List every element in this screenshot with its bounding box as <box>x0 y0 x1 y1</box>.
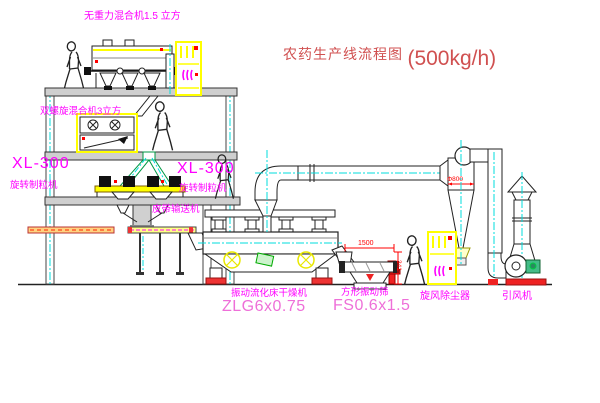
bucket-elevator-2 <box>428 232 456 284</box>
title-capacity: (500kg/h) <box>407 47 496 70</box>
diagram-title: 农药生产线流程图 (500kg/h) <box>283 44 496 71</box>
exhaust-downpipe <box>470 149 506 278</box>
cyclone-label: 旋风除尘器 <box>420 292 470 302</box>
person-4 <box>405 236 425 284</box>
belt-conveyor-label: 皮带输送机 <box>152 205 200 215</box>
cyclone-diameter-dim: Φ800 <box>447 177 463 184</box>
title-chinese: 农药生产线流程图 <box>283 46 403 62</box>
person-1 <box>65 42 84 88</box>
granulator-left-name: 旋转制粒机 <box>10 181 58 191</box>
mixer1-label: 无重力混合机1.5 立方 <box>84 12 181 22</box>
granulator-left-model: XL-300 <box>12 156 70 172</box>
granulator-right-name: 旋转制粒机 <box>179 184 227 194</box>
person-2 <box>153 102 173 150</box>
fan-label: 引风机 <box>502 292 532 302</box>
granulator-right-model: XL-300 <box>177 161 235 177</box>
flow-diagram-canvas: 农药生产线流程图 (500kg/h) 无重力混合机1.5 立方 双螺旋混合机3立… <box>0 0 600 403</box>
rotary-granulators <box>95 176 185 199</box>
bucket-elevator-1 <box>176 42 201 95</box>
sieve-model-label: FS0.6x1.5 <box>333 298 410 314</box>
sieve-length-dim: 1500 <box>358 240 374 247</box>
sieve-height-dim: 341 <box>395 260 402 271</box>
dryer-model-label: ZLG6x0.75 <box>222 299 306 315</box>
mixer2-label: 双螺旋混合机3立方 <box>40 107 121 117</box>
screw-mixer <box>77 96 158 152</box>
